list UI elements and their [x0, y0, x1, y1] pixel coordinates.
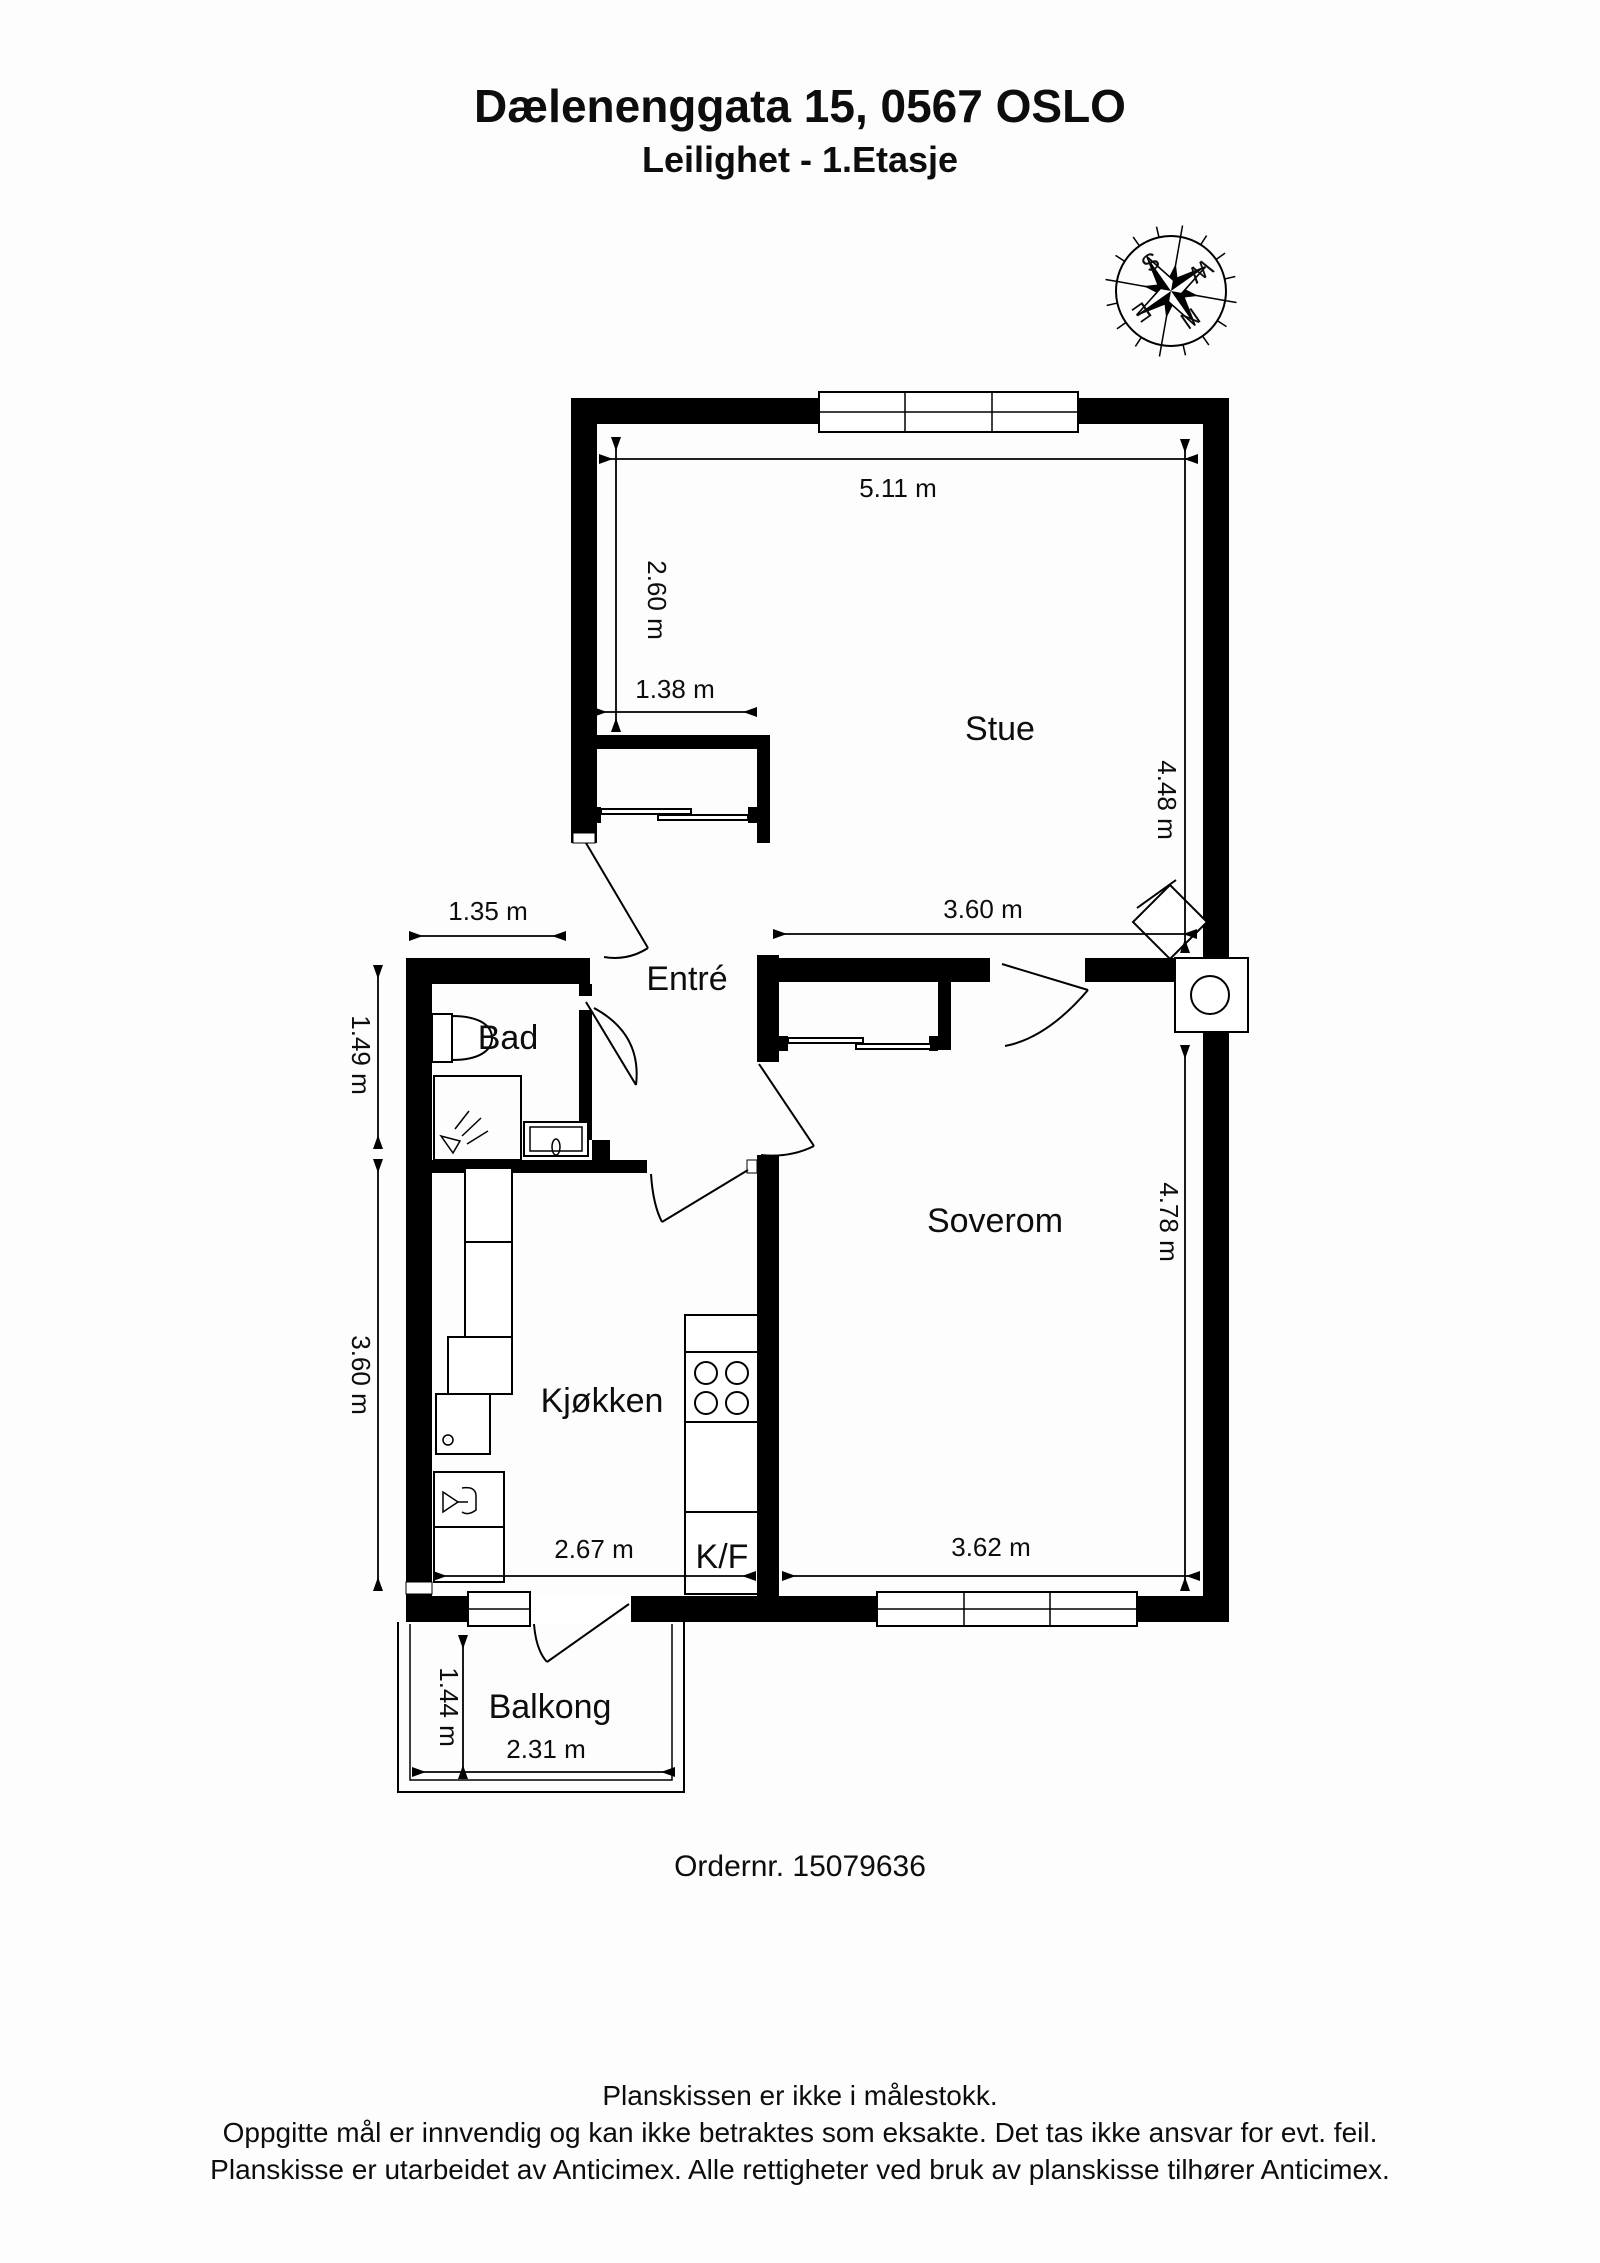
soverom-door — [1002, 964, 1088, 1046]
stue-door — [586, 843, 648, 958]
stue-label: Stue — [965, 710, 1035, 748]
footer-disclaimer: Planskissen er ikke i målestokk. Oppgitt… — [210, 2080, 1390, 2185]
floor-subtitle: Leilighet - 1.Etasje — [642, 139, 958, 180]
svg-text:2.60 m: 2.60 m — [642, 560, 672, 640]
order-number: Ordernr. 15079636 — [674, 1850, 926, 1883]
svg-text:1.49 m: 1.49 m — [346, 1015, 376, 1095]
svg-text:2.31 m: 2.31 m — [506, 1734, 586, 1764]
corner-fireplace-icon — [1133, 880, 1207, 959]
dim-bad-height: 1.49 m — [346, 966, 378, 1148]
entre-label: Entré — [646, 960, 727, 998]
chimney-shaft-icon — [1175, 958, 1248, 1032]
floorplan-page: Dælenenggata 15, 0567 OSLO Leilighet - 1… — [0, 0, 1600, 2263]
kjokken-door — [651, 1170, 748, 1222]
svg-text:3.60 m: 3.60 m — [346, 1335, 376, 1415]
footer-line-1: Planskissen er ikke i målestokk. — [602, 2080, 997, 2111]
soverom-second-door — [759, 1064, 814, 1156]
kitchen-counter-left — [434, 1168, 512, 1582]
svg-text:4.78 m: 4.78 m — [1154, 1182, 1184, 1262]
shower-icon — [434, 1076, 521, 1160]
kf-label: K/F — [696, 1538, 749, 1576]
compass-rose-icon: N E S W — [1079, 199, 1263, 383]
stue-sliding-door — [592, 807, 757, 823]
windows — [468, 392, 1137, 1626]
dim-balkong-height: 1.44 m — [434, 1636, 464, 1778]
dim-stue-height-right: 4.48 m — [1152, 440, 1185, 952]
bathroom-sink-icon — [524, 1122, 588, 1156]
svg-text:1.38 m: 1.38 m — [635, 674, 715, 704]
dim-alcove-width: 1.38 m — [594, 674, 756, 712]
bad-door — [586, 1002, 637, 1085]
svg-text:3.62 m: 3.62 m — [951, 1532, 1031, 1562]
dim-soverom-width: 3.62 m — [783, 1532, 1199, 1576]
dim-stue-width: 5.11 m — [600, 459, 1197, 503]
stove-icon — [685, 1352, 758, 1422]
soverom-window — [877, 1592, 1137, 1626]
page-title: Dælenenggata 15, 0567 OSLO Leilighet - 1… — [474, 80, 1126, 180]
svg-text:2.67 m: 2.67 m — [554, 1534, 634, 1564]
svg-text:5.11 m: 5.11 m — [859, 473, 937, 503]
kitchen-sink-icon — [436, 1394, 490, 1454]
svg-text:1.35 m: 1.35 m — [448, 896, 528, 926]
dim-stue-lower-width: 3.60 m — [774, 894, 1196, 934]
fixtures — [432, 880, 1248, 1594]
stue-window — [819, 392, 1078, 432]
balkong-label: Balkong — [489, 1688, 612, 1726]
dim-bad-width: 1.35 m — [410, 896, 565, 936]
dim-soverom-height: 4.78 m — [1154, 1046, 1185, 1590]
kjokken-label: Kjøkken — [541, 1382, 664, 1420]
walls — [406, 398, 1229, 1622]
soverom-label: Soverom — [927, 1202, 1063, 1240]
footer-line-3: Planskisse er utarbeidet av Anticimex. A… — [210, 2154, 1390, 2185]
address-title: Dælenenggata 15, 0567 OSLO — [474, 80, 1126, 132]
dishwasher-icon — [434, 1472, 504, 1527]
dim-kjokken-height: 3.60 m — [346, 1160, 378, 1590]
footer-line-2: Oppgitte mål er innvendig og kan ikke be… — [223, 2117, 1378, 2148]
soverom-closet-sliding-door — [779, 1036, 938, 1051]
bad-label: Bad — [478, 1019, 539, 1057]
svg-text:4.48 m: 4.48 m — [1152, 760, 1182, 840]
svg-text:1.44 m: 1.44 m — [434, 1667, 464, 1747]
svg-text:3.60 m: 3.60 m — [943, 894, 1023, 924]
